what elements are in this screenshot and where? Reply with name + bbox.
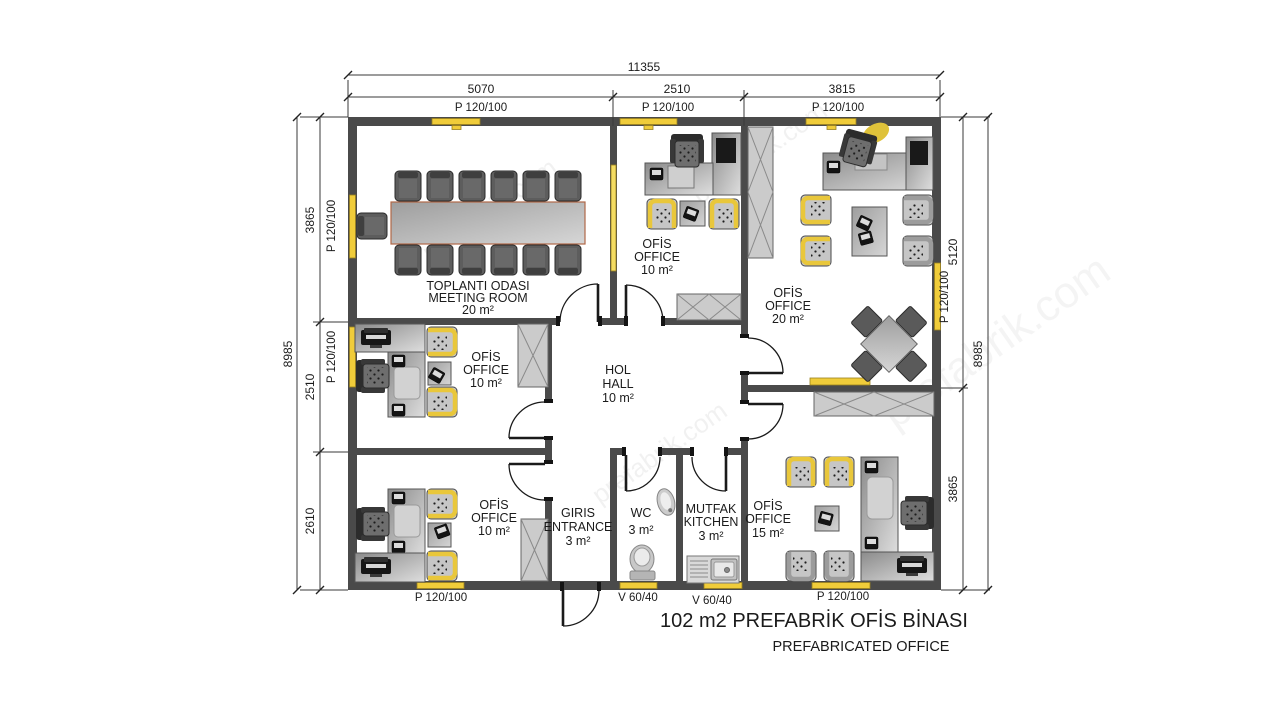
dim-right-total: 8985 bbox=[971, 340, 985, 367]
room-name-en: KITCHEN bbox=[684, 515, 739, 529]
vent-label-wc: V 60/40 bbox=[618, 592, 658, 604]
desk-pad bbox=[867, 477, 893, 519]
phone bbox=[392, 355, 405, 367]
room-name-en: OFFICE bbox=[745, 512, 791, 526]
room-label-office-top: OFİS OFFICE 10 m² bbox=[634, 237, 680, 277]
window-left-meeting bbox=[350, 195, 356, 258]
guest-chair bbox=[427, 551, 457, 581]
dim-top-seg2: 2510 bbox=[664, 82, 691, 96]
dim-right-seg1: 5120 bbox=[946, 238, 960, 265]
phone bbox=[650, 168, 663, 180]
room-area: 10 m² bbox=[602, 391, 634, 405]
dim-top-seg1: 5070 bbox=[468, 82, 495, 96]
window-interior-meeting bbox=[611, 165, 616, 271]
sink-basin bbox=[714, 562, 734, 577]
wall-interior bbox=[610, 448, 624, 455]
office-bottom-left-furniture bbox=[355, 489, 548, 582]
window-label-top-1: P 120/100 bbox=[455, 102, 507, 114]
guest-chair bbox=[427, 327, 457, 357]
window-bottom-wc bbox=[620, 583, 657, 589]
monitor bbox=[716, 138, 736, 163]
wall-interior bbox=[598, 318, 626, 325]
room-name-en: OFFICE bbox=[471, 511, 517, 525]
toilet bbox=[630, 545, 655, 580]
wall-interior bbox=[741, 438, 748, 581]
window-top-office10 bbox=[620, 119, 677, 125]
wall-interior bbox=[660, 448, 692, 455]
room-name-tr: OFİS bbox=[753, 499, 782, 513]
wash-basin bbox=[654, 487, 677, 517]
phone bbox=[865, 461, 878, 473]
window-bottom-office10 bbox=[417, 583, 464, 589]
dim-left-total: 8985 bbox=[281, 340, 295, 367]
room-name-en: HALL bbox=[602, 377, 633, 391]
window-label-right: P 120/100 bbox=[939, 271, 951, 323]
guest-chair bbox=[427, 387, 457, 417]
window-label-top-3: P 120/100 bbox=[812, 102, 864, 114]
room-label-office-bottom-left: OFİS OFFICE 10 m² bbox=[471, 498, 517, 538]
wall-interior bbox=[728, 448, 741, 455]
room-name-en: OFFICE bbox=[765, 299, 811, 313]
wall-interior bbox=[741, 126, 748, 337]
title-sub: PREFABRICATED OFFICE bbox=[773, 639, 950, 655]
room-name-tr: OFİS bbox=[471, 350, 500, 364]
office-mid-left-furniture bbox=[355, 324, 548, 417]
room-label-office-right: OFİS OFFICE 20 m² bbox=[765, 286, 811, 326]
wall-interior bbox=[610, 455, 617, 581]
exec-chair bbox=[356, 507, 389, 541]
room-name-tr: OFİS bbox=[642, 237, 671, 251]
window-label-left-2: P 120/100 bbox=[326, 331, 338, 383]
room-name-tr: MUTFAK bbox=[686, 502, 737, 516]
title-main: 102 m2 PREFABRİK OFİS BİNASI bbox=[660, 609, 968, 632]
armchair bbox=[824, 457, 854, 487]
door-meeting-room bbox=[560, 284, 598, 322]
room-area: 10 m² bbox=[470, 376, 502, 390]
room-area: 3 m² bbox=[566, 534, 591, 548]
door-main-entrance bbox=[563, 590, 599, 626]
room-name-tr: GIRIS bbox=[561, 506, 595, 520]
guest-chair bbox=[709, 199, 739, 229]
room-area: 20 m² bbox=[772, 312, 804, 326]
cabinet bbox=[748, 127, 773, 258]
door-office-bottom-left bbox=[509, 464, 545, 500]
door-kitchen bbox=[692, 455, 726, 491]
office-top-furniture bbox=[645, 133, 741, 320]
faucet bbox=[725, 568, 730, 573]
exec-chair bbox=[356, 359, 389, 393]
room-area: 20 m² bbox=[462, 303, 494, 317]
office-right-furniture bbox=[748, 118, 948, 403]
exec-chair bbox=[670, 134, 704, 167]
guest-chair bbox=[647, 199, 677, 229]
exec-chair bbox=[901, 496, 934, 530]
room-label-office-bottom-right: OFİS OFFICE 15 m² bbox=[745, 499, 791, 540]
room-name-tr: OFİS bbox=[479, 498, 508, 512]
guest-chair bbox=[427, 489, 457, 519]
window-label-top-2: P 120/100 bbox=[642, 102, 694, 114]
room-label-entrance: GIRIS ENTRANCE 3 m² bbox=[544, 506, 613, 548]
room-name-en: ENTRANCE bbox=[544, 520, 613, 534]
phone bbox=[827, 161, 840, 173]
armchair bbox=[903, 236, 933, 266]
room-label-wc: WC 3 m² bbox=[629, 506, 654, 537]
room-area: 3 m² bbox=[699, 529, 724, 543]
door-office-bottom-right bbox=[748, 404, 783, 439]
room-area: 15 m² bbox=[752, 526, 784, 540]
wall-interior bbox=[676, 455, 683, 581]
meeting-room-furniture bbox=[357, 171, 585, 275]
window-label-left-1: P 120/100 bbox=[326, 200, 338, 252]
dim-top-total: 11355 bbox=[628, 60, 661, 74]
room-label-kitchen: MUTFAK KITCHEN 3 m² bbox=[684, 502, 739, 543]
dim-left-seg2: 2510 bbox=[303, 373, 317, 400]
vent-label-kitchen: V 60/40 bbox=[692, 595, 732, 607]
window-label-bottom-1: P 120/100 bbox=[415, 592, 467, 604]
wall-interior bbox=[741, 385, 941, 392]
floor-plan-canvas: prefabrik.com prefabrik.com prefabrik.co… bbox=[0, 0, 1280, 720]
cabinet bbox=[677, 294, 741, 320]
dim-left-seg3: 2610 bbox=[303, 507, 317, 534]
door-office-top bbox=[626, 285, 663, 322]
dim-top-seg3: 3815 bbox=[829, 82, 856, 96]
room-label-meeting: TOPLANTI ODASI MEETING ROOM 20 m² bbox=[426, 279, 529, 317]
window-bottom-office15 bbox=[812, 583, 870, 589]
dim-left-seg1: 3865 bbox=[303, 206, 317, 233]
room-name-tr: OFİS bbox=[773, 286, 802, 300]
phone bbox=[865, 537, 878, 549]
monitor bbox=[910, 141, 928, 165]
cabinet bbox=[814, 392, 934, 416]
cabinet bbox=[518, 324, 548, 387]
armchair bbox=[786, 457, 816, 487]
desk-pad bbox=[394, 367, 420, 399]
room-name-en: OFFICE bbox=[463, 363, 509, 377]
printer bbox=[897, 556, 927, 576]
room-name-en: OFFICE bbox=[634, 250, 680, 264]
armchair bbox=[903, 195, 933, 225]
room-area: 3 m² bbox=[629, 523, 654, 537]
room-label-hall: HOL HALL 10 m² bbox=[602, 363, 634, 405]
drawing-title: 102 m2 PREFABRİK OFİS BİNASI PREFABRICAT… bbox=[660, 609, 968, 655]
room-area: 10 m² bbox=[478, 524, 510, 538]
window-label-bottom-2: P 120/100 bbox=[817, 591, 869, 603]
window-sill-tick bbox=[644, 126, 653, 130]
armchair bbox=[801, 236, 831, 266]
floor-plan-drawing: prefabrik.com prefabrik.com prefabrik.co… bbox=[0, 0, 1280, 720]
room-area: 10 m² bbox=[641, 263, 673, 277]
armchair bbox=[801, 195, 831, 225]
phone bbox=[392, 492, 405, 504]
room-name-tr: HOL bbox=[605, 363, 631, 377]
desk-pad bbox=[394, 505, 420, 537]
kitchen-fixtures bbox=[687, 556, 739, 583]
phone bbox=[392, 404, 405, 416]
window-top-office20 bbox=[806, 119, 856, 125]
printer bbox=[361, 328, 391, 348]
door-office-right bbox=[748, 338, 783, 373]
armchair bbox=[786, 551, 816, 581]
wall-interior bbox=[348, 448, 552, 455]
conference-chair-head bbox=[357, 213, 387, 239]
window-sill-tick bbox=[827, 126, 836, 130]
window-sill-tick bbox=[452, 126, 461, 130]
room-name-tr: WC bbox=[631, 506, 652, 520]
phone bbox=[392, 541, 405, 553]
wall-interior bbox=[545, 440, 552, 462]
printer bbox=[361, 557, 391, 577]
window-top-meeting bbox=[432, 119, 480, 125]
keyboard bbox=[668, 166, 694, 188]
window-interior-office15 bbox=[810, 378, 870, 385]
armchair bbox=[824, 551, 854, 581]
room-label-office-mid-left: OFİS OFFICE 10 m² bbox=[463, 350, 509, 390]
dim-right-seg2: 3865 bbox=[946, 475, 960, 502]
conference-table bbox=[391, 202, 585, 244]
door-office-mid-left bbox=[509, 402, 545, 438]
